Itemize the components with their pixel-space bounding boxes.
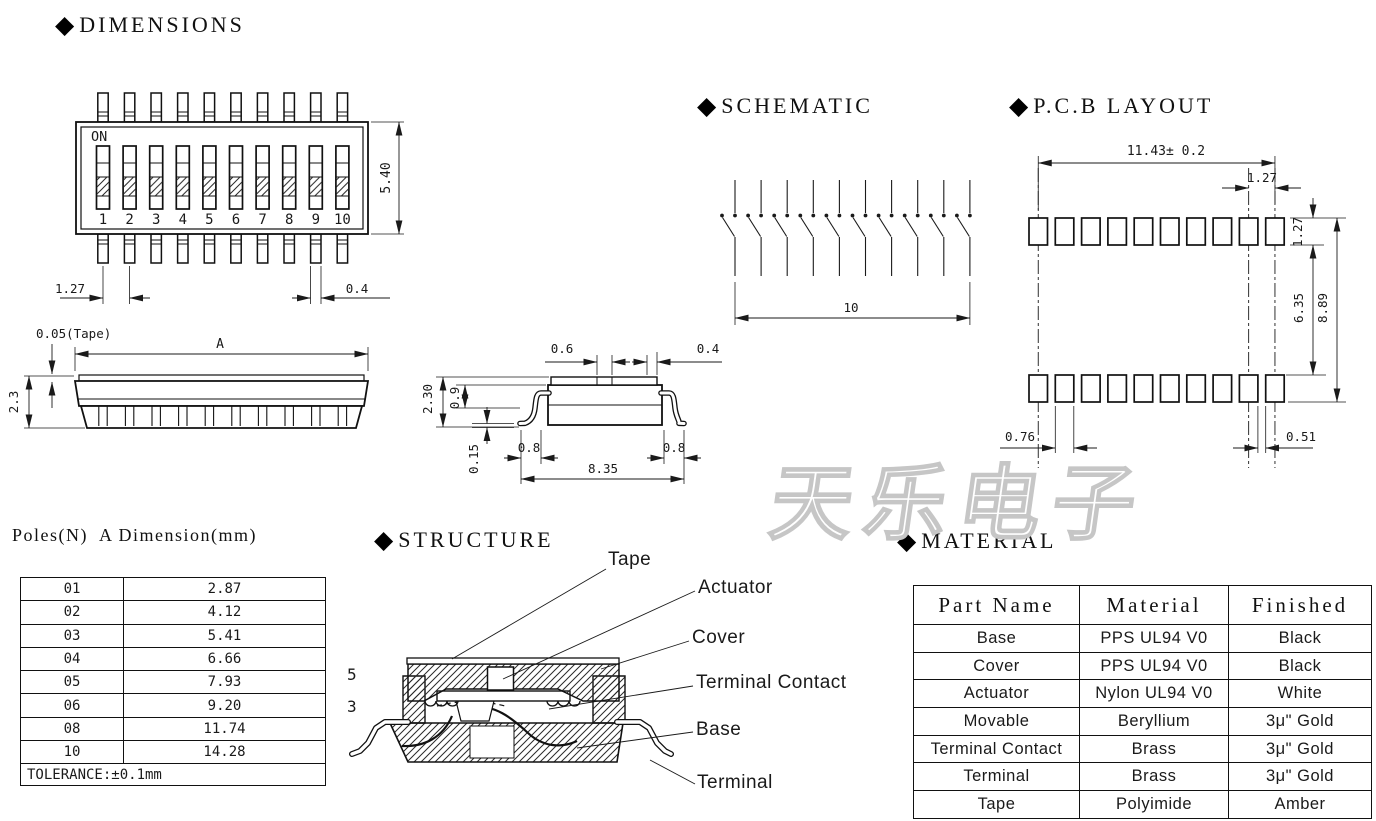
material-cell: Brass xyxy=(1080,763,1229,791)
material-cell: PPS UL94 V0 xyxy=(1080,652,1229,680)
dim-pad-gap: 0.51 xyxy=(1286,429,1316,444)
dimension-cell: 9.20 xyxy=(124,694,326,717)
finish-cell: 3μ" Gold xyxy=(1229,708,1372,736)
dim-standoff: 0.15 xyxy=(466,444,481,474)
svg-text:7: 7 xyxy=(258,212,266,228)
column-header: Material xyxy=(1080,586,1229,625)
structure-callout-5: 5 xyxy=(347,665,357,684)
dim-foot-right: 0.8 xyxy=(663,440,686,455)
heading-label: SCHEMATIC xyxy=(721,93,873,119)
svg-text:9: 9 xyxy=(312,212,320,228)
part-cell: Cover xyxy=(914,652,1080,680)
column-header: Part Name xyxy=(914,586,1080,625)
table-row: BasePPS UL94 V0Black xyxy=(914,625,1372,653)
table-row: 012.87 xyxy=(21,578,326,601)
table-row: 069.20 xyxy=(21,694,326,717)
dimension-cell: 11.74 xyxy=(124,717,326,740)
top-view-drawing: ON 1 2 3 4 5 6 7 8 9 10 5.40 xyxy=(55,93,404,304)
poles-table-title: Poles(N) A Dimension(mm) xyxy=(12,525,257,546)
on-label: ON xyxy=(91,129,107,145)
heading-label: P.C.B LAYOUT xyxy=(1033,93,1213,119)
structure-callout-3: 3 xyxy=(347,697,357,716)
table-row: ActuatorNylon UL94 V0White xyxy=(914,680,1372,708)
poles-dimension-table: 012.87 024.12 035.41 046.66 057.93 069.2… xyxy=(20,577,326,786)
svg-text:1: 1 xyxy=(99,212,107,228)
material-table: Part Name Material Finished BasePPS UL94… xyxy=(913,585,1372,819)
table-row: Terminal ContactBrass3μ" Gold xyxy=(914,735,1372,763)
table-row: 046.66 xyxy=(21,647,326,670)
structure-label-base: Base xyxy=(696,719,741,741)
diamond-icon: ◆ xyxy=(55,13,74,38)
section-heading-dimensions: ◆ DIMENSIONS xyxy=(55,12,245,38)
poles-cell: 02 xyxy=(21,601,124,624)
dim-actuator-slot: 0.6 xyxy=(551,341,574,356)
svg-text:4: 4 xyxy=(179,212,187,228)
svg-text:2: 2 xyxy=(125,212,133,228)
dimension-cell: 2.87 xyxy=(124,578,326,601)
part-cell: Tape xyxy=(914,791,1080,819)
finish-cell: Amber xyxy=(1229,791,1372,819)
material-cell: Brass xyxy=(1080,735,1229,763)
diamond-icon: ◆ xyxy=(1009,94,1028,119)
datasheet-page: ON 1 2 3 4 5 6 7 8 9 10 5.40 xyxy=(0,0,1376,821)
dim-pcb-pitch: 1.27 xyxy=(1247,170,1277,185)
table-row: 024.12 xyxy=(21,601,326,624)
dim-edge: 0.4 xyxy=(697,341,720,356)
finish-cell: White xyxy=(1229,680,1372,708)
diamond-icon: ◆ xyxy=(697,94,716,119)
finish-cell: 3μ" Gold xyxy=(1229,763,1372,791)
structure-label-terminal: Terminal xyxy=(697,772,773,794)
dimension-cell: 5.41 xyxy=(124,624,326,647)
tolerance-note: TOLERANCE:±0.1mm xyxy=(21,764,326,786)
material-cell: Beryllium xyxy=(1080,708,1229,736)
section-heading-pcb-layout: ◆ P.C.B LAYOUT xyxy=(1009,93,1213,119)
part-cell: Base xyxy=(914,625,1080,653)
poles-cell: 10 xyxy=(21,741,124,764)
dim-row-gap: 6.35 xyxy=(1291,293,1306,323)
dim-overall: 8.89 xyxy=(1315,293,1330,323)
table-row: CoverPPS UL94 V0Black xyxy=(914,652,1372,680)
structure-label-terminal-contact: Terminal Contact xyxy=(696,672,847,694)
finish-cell: 3μ" Gold xyxy=(1229,735,1372,763)
dim-pin-width: 0.4 xyxy=(346,281,369,296)
material-cell: Polyimide xyxy=(1080,791,1229,819)
section-heading-schematic: ◆ SCHEMATIC xyxy=(697,93,873,119)
material-header-row: Part Name Material Finished xyxy=(914,586,1372,625)
part-cell: Actuator xyxy=(914,680,1080,708)
svg-text:5: 5 xyxy=(205,212,213,228)
watermark: 天乐电子 xyxy=(764,437,1157,556)
dim-foot-left: 0.8 xyxy=(518,440,541,455)
dim-pad-height: 1.27 xyxy=(1290,217,1305,247)
dim-side-height: 2.3 xyxy=(6,391,21,414)
poles-cell: 06 xyxy=(21,694,124,717)
dim-body-height: 5.40 xyxy=(379,162,394,193)
end-view-drawing: 0.6 0.4 2.30 0.9 0.15 xyxy=(420,341,722,484)
poles-cell: 05 xyxy=(21,671,124,694)
structure-label-actuator: Actuator xyxy=(698,577,773,599)
svg-text:10: 10 xyxy=(334,212,351,228)
diamond-icon: ◆ xyxy=(374,528,393,553)
svg-text:3: 3 xyxy=(152,212,160,228)
pcb-layout-drawing: 11.43± 0.2 1.27 1.27 6.35 8.89 0.76 xyxy=(1000,144,1346,468)
table-row: MovableBeryllium3μ" Gold xyxy=(914,708,1372,736)
dim-length-a: A xyxy=(216,337,224,352)
table-row: 035.41 xyxy=(21,624,326,647)
poles-cell: 08 xyxy=(21,717,124,740)
structure-drawing xyxy=(352,569,695,784)
dim-span: 8.35 xyxy=(588,461,618,476)
table-row: 0811.74 xyxy=(21,717,326,740)
material-cell: PPS UL94 V0 xyxy=(1080,625,1229,653)
dim-pcb-span: 11.43± 0.2 xyxy=(1127,144,1205,159)
dimension-cell: 6.66 xyxy=(124,647,326,670)
schematic-drawing: 10 xyxy=(720,180,972,325)
dim-end-height: 2.30 xyxy=(420,384,435,414)
dim-tape-thickness: 0.05(Tape) xyxy=(36,326,111,341)
poles-cell: 03 xyxy=(21,624,124,647)
column-header: Finished xyxy=(1229,586,1372,625)
part-cell: Terminal xyxy=(914,763,1080,791)
table-row: TerminalBrass3μ" Gold xyxy=(914,763,1372,791)
dim-pin-pitch: 1.27 xyxy=(55,281,85,296)
poles-cell: 01 xyxy=(21,578,124,601)
structure-label-tape: Tape xyxy=(608,549,651,571)
svg-text:8: 8 xyxy=(285,212,293,228)
side-view-drawing: A 0.05(Tape) 2.3 xyxy=(6,326,368,428)
heading-label: STRUCTURE xyxy=(398,527,553,553)
dimension-cell: 7.93 xyxy=(124,671,326,694)
dimension-cell: 14.28 xyxy=(124,741,326,764)
poles-cell: 04 xyxy=(21,647,124,670)
table-row: TapePolyimideAmber xyxy=(914,791,1372,819)
dimension-cell: 4.12 xyxy=(124,601,326,624)
table-row: 057.93 xyxy=(21,671,326,694)
table-row: 1014.28 xyxy=(21,741,326,764)
material-cell: Nylon UL94 V0 xyxy=(1080,680,1229,708)
structure-label-cover: Cover xyxy=(692,627,745,649)
part-cell: Movable xyxy=(914,708,1080,736)
svg-text:6: 6 xyxy=(232,212,240,228)
finish-cell: Black xyxy=(1229,625,1372,653)
tolerance-row: TOLERANCE:±0.1mm xyxy=(21,764,326,786)
section-heading-structure: ◆ STRUCTURE xyxy=(374,527,554,553)
dim-switch-count: 10 xyxy=(843,300,858,315)
heading-label: DIMENSIONS xyxy=(79,12,245,38)
finish-cell: Black xyxy=(1229,652,1372,680)
dim-body-depth: 0.9 xyxy=(447,387,462,410)
part-cell: Terminal Contact xyxy=(914,735,1080,763)
